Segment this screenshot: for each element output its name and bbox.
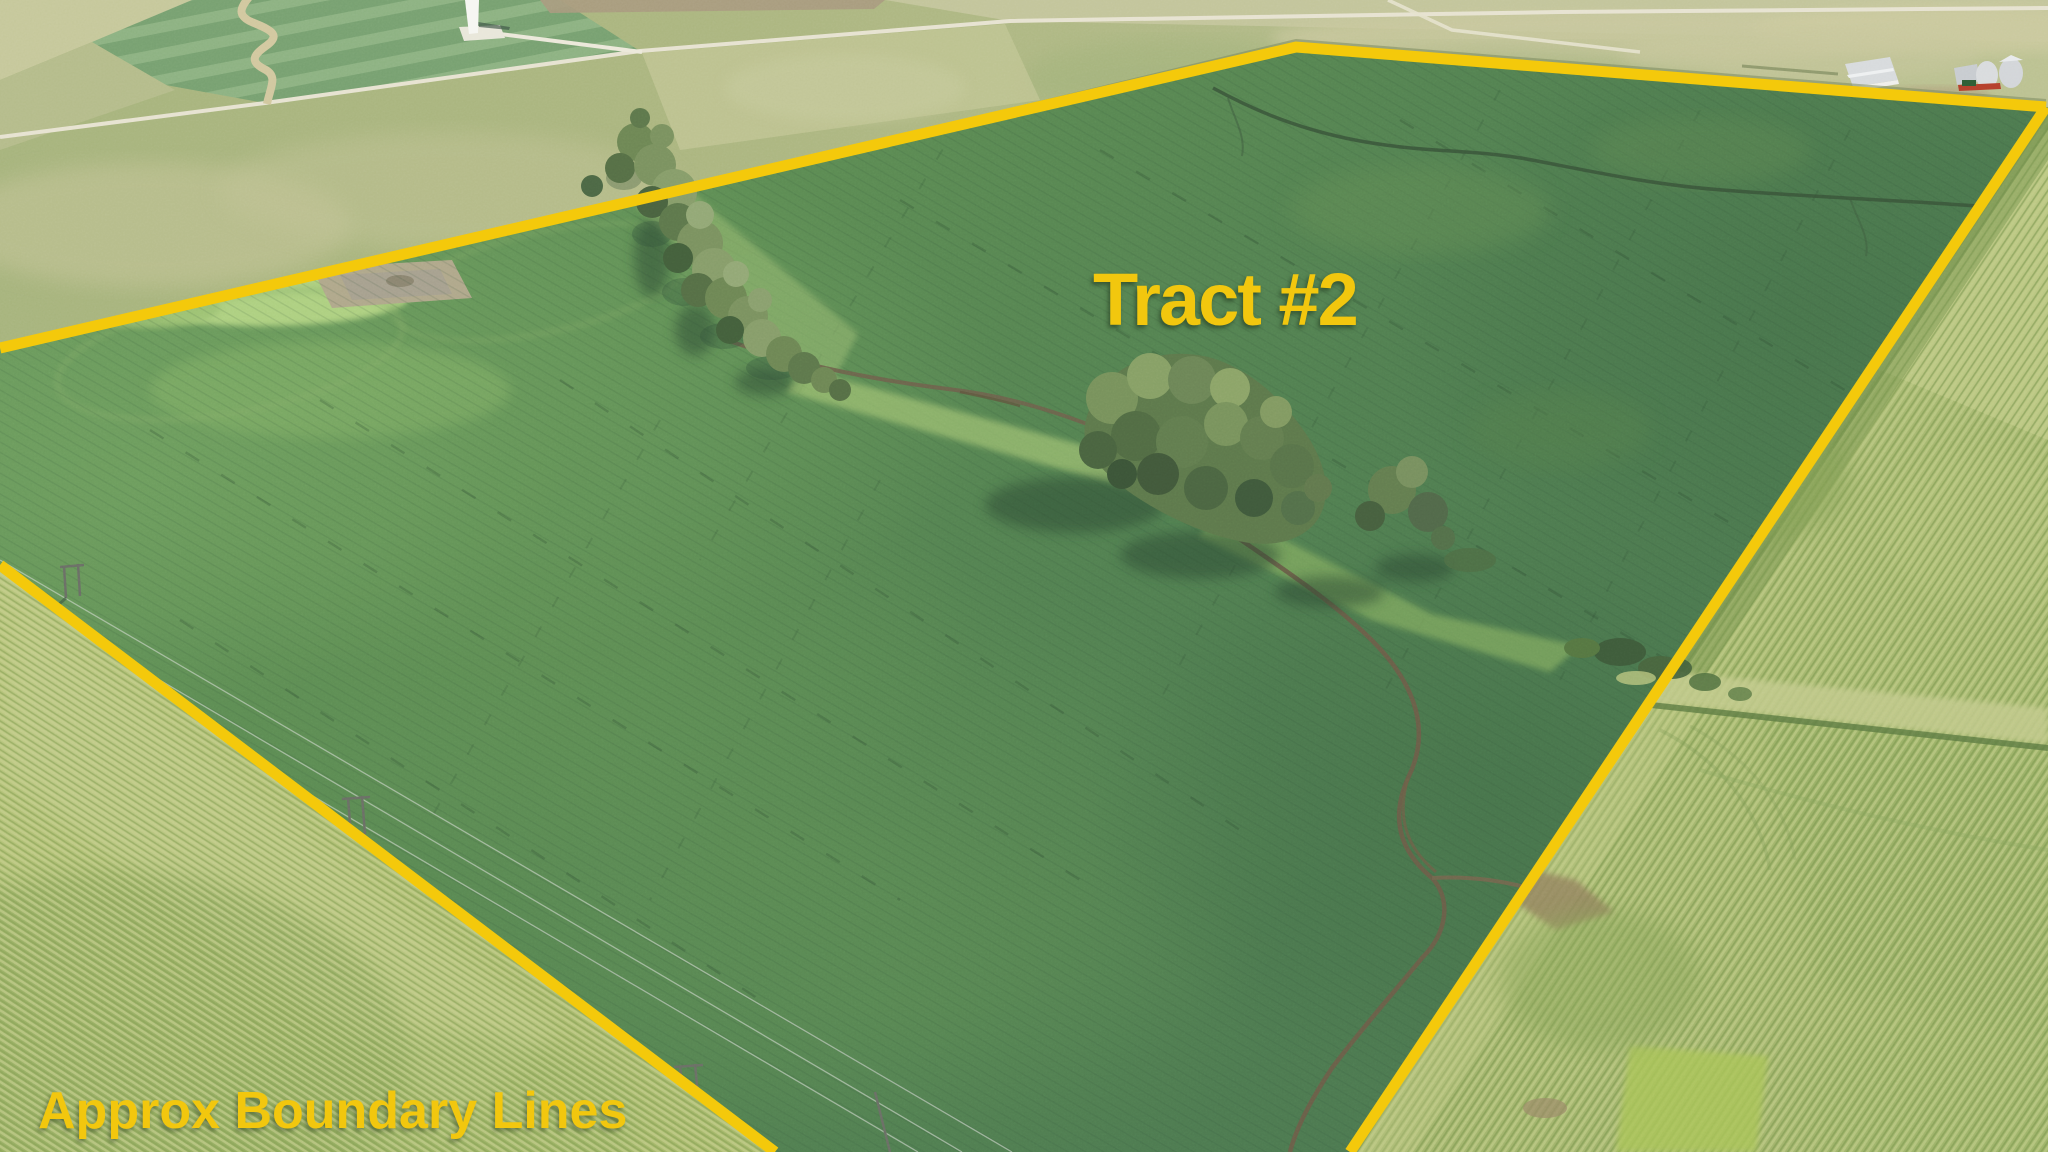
svg-text:Approx Boundary Lines: Approx Boundary Lines: [38, 1082, 627, 1140]
svg-text:Tract #2: Tract #2: [1093, 258, 1357, 341]
